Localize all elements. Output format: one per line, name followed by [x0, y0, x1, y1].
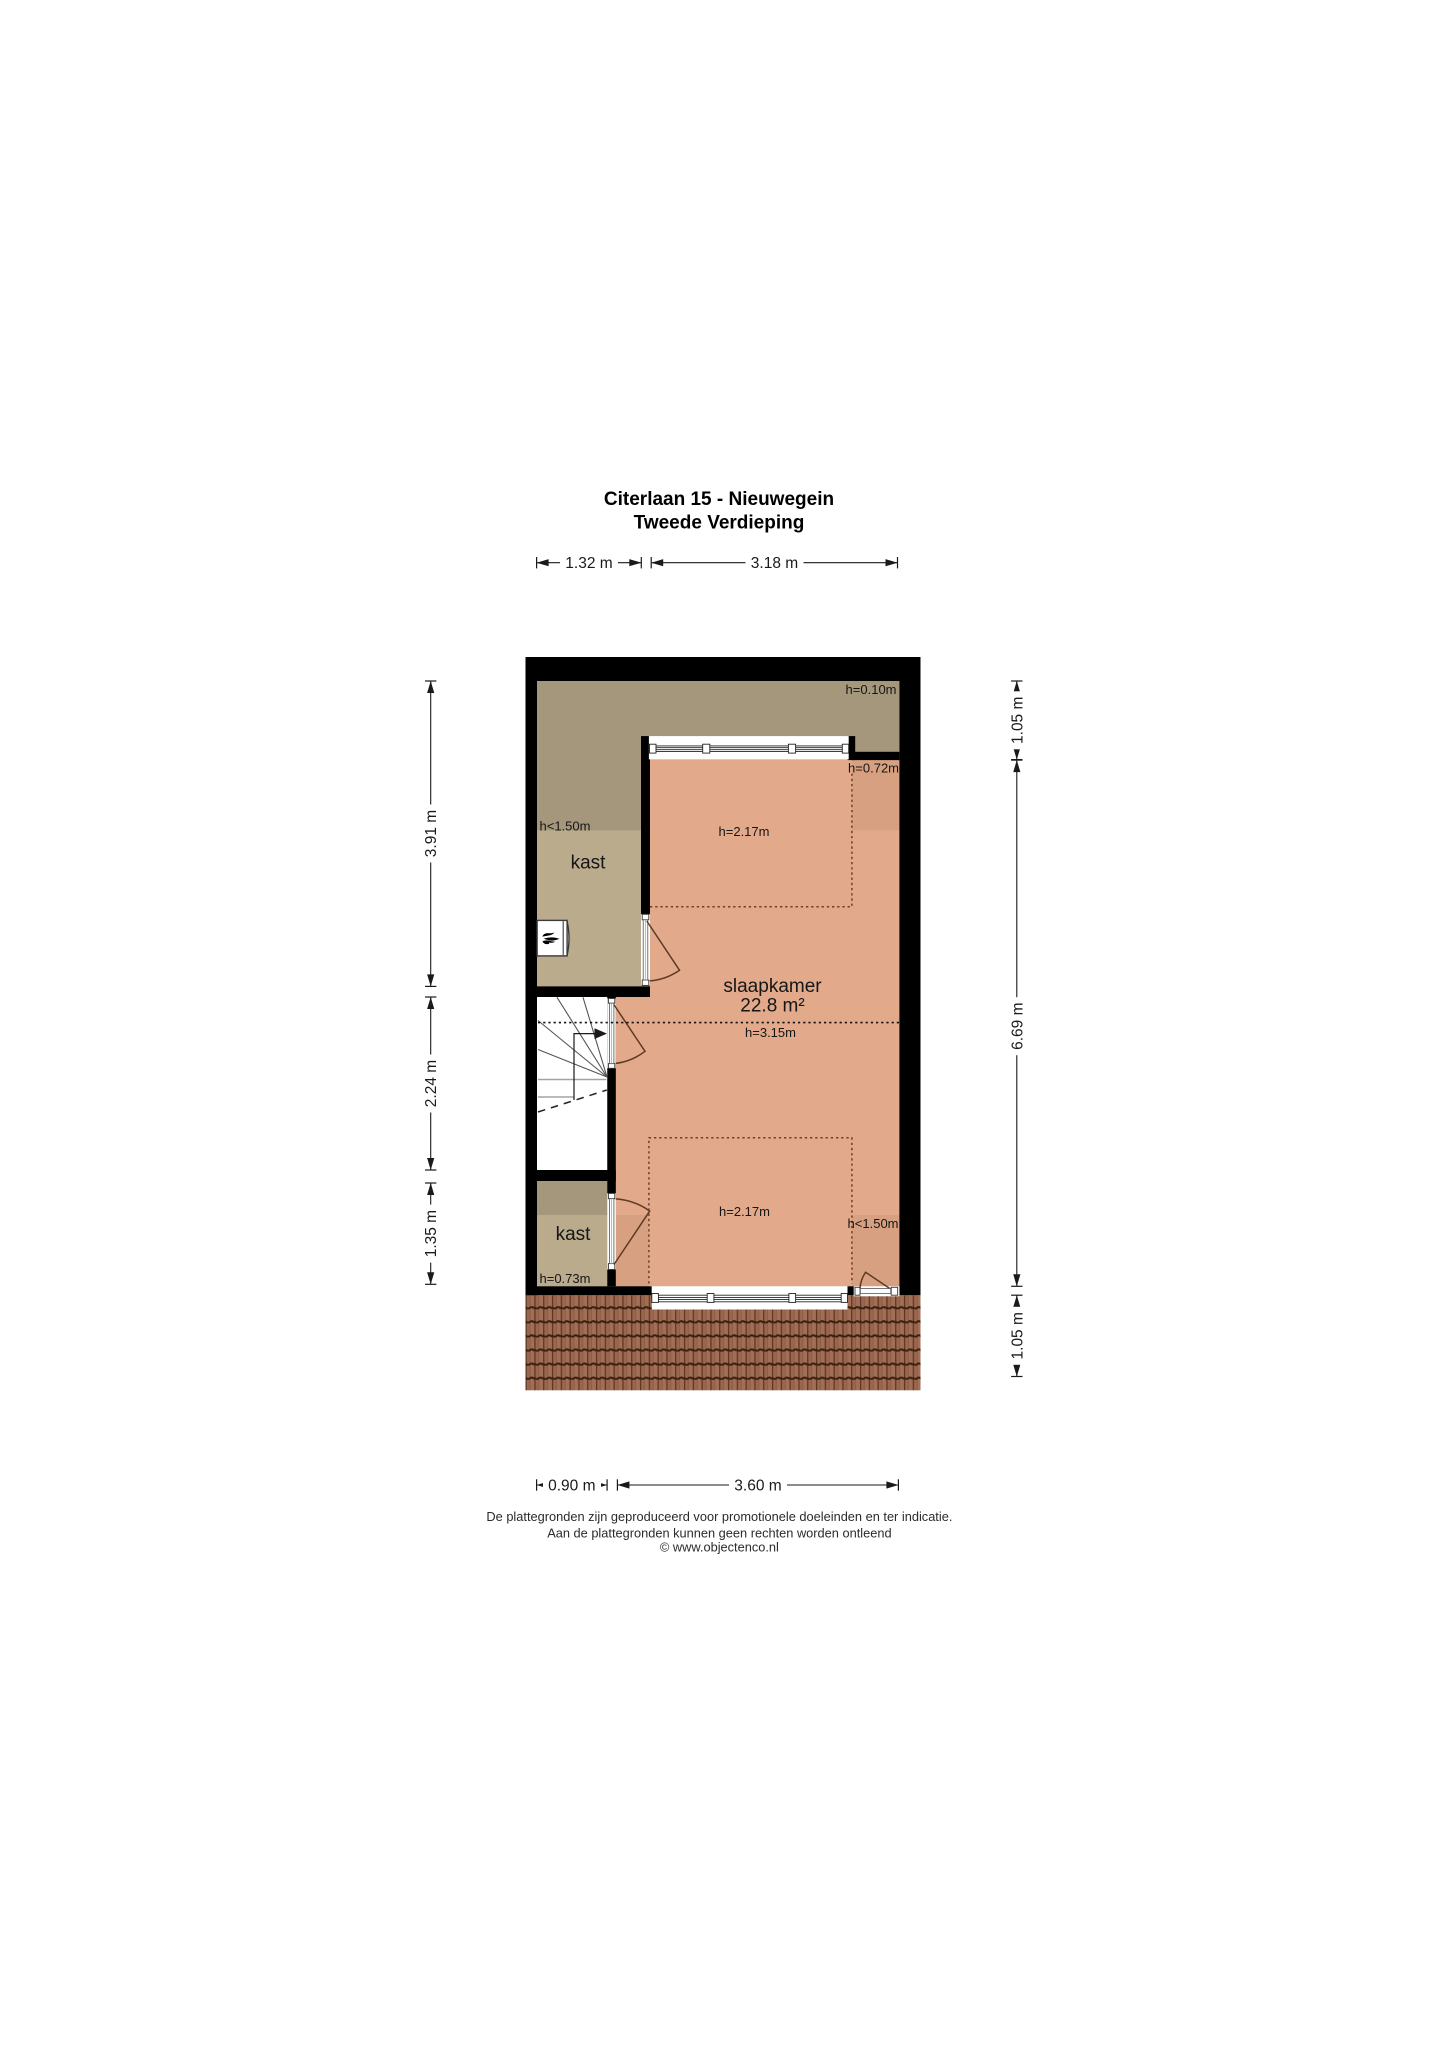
svg-text:1.35 m: 1.35 m	[423, 1210, 440, 1257]
svg-text:slaapkamer: slaapkamer	[723, 976, 822, 997]
svg-text:1.32 m: 1.32 m	[565, 555, 612, 572]
svg-text:h=2.17m: h=2.17m	[719, 1204, 770, 1219]
svg-text:0.90 m: 0.90 m	[548, 1477, 595, 1494]
svg-text:1.05 m: 1.05 m	[1009, 697, 1026, 744]
svg-text:3.60 m: 3.60 m	[734, 1477, 781, 1494]
svg-text:6.69 m: 6.69 m	[1009, 1003, 1026, 1050]
svg-text:h=0.72m: h=0.72m	[848, 761, 899, 776]
svg-text:1.05 m: 1.05 m	[1009, 1312, 1026, 1359]
svg-text:h=0.10m: h=0.10m	[846, 682, 897, 697]
svg-text:h<1.50m: h<1.50m	[540, 819, 591, 834]
svg-text:h=3.15m: h=3.15m	[745, 1025, 796, 1040]
svg-text:h=2.17m: h=2.17m	[719, 824, 770, 839]
svg-text:De plattegronden zijn geproduc: De plattegronden zijn geproduceerd voor …	[486, 1509, 952, 1524]
svg-text:kast: kast	[571, 853, 607, 874]
svg-text:Tweede Verdieping: Tweede Verdieping	[634, 513, 805, 534]
svg-text:Citerlaan 15 - Nieuwegein: Citerlaan 15 - Nieuwegein	[604, 489, 834, 510]
svg-text:2.24 m: 2.24 m	[423, 1060, 440, 1107]
svg-text:Aan de plattegronden kunnen ge: Aan de plattegronden kunnen geen rechten…	[547, 1526, 891, 1541]
svg-text:3.18 m: 3.18 m	[751, 555, 798, 572]
svg-text:h<1.50m: h<1.50m	[848, 1216, 899, 1231]
svg-text:22.8 m²: 22.8 m²	[740, 996, 804, 1017]
svg-text:h=0.73m: h=0.73m	[540, 1271, 591, 1286]
svg-text:© www.objectenco.nl: © www.objectenco.nl	[660, 1540, 779, 1555]
svg-text:3.91 m: 3.91 m	[423, 810, 440, 857]
svg-text:kast: kast	[556, 1224, 592, 1245]
